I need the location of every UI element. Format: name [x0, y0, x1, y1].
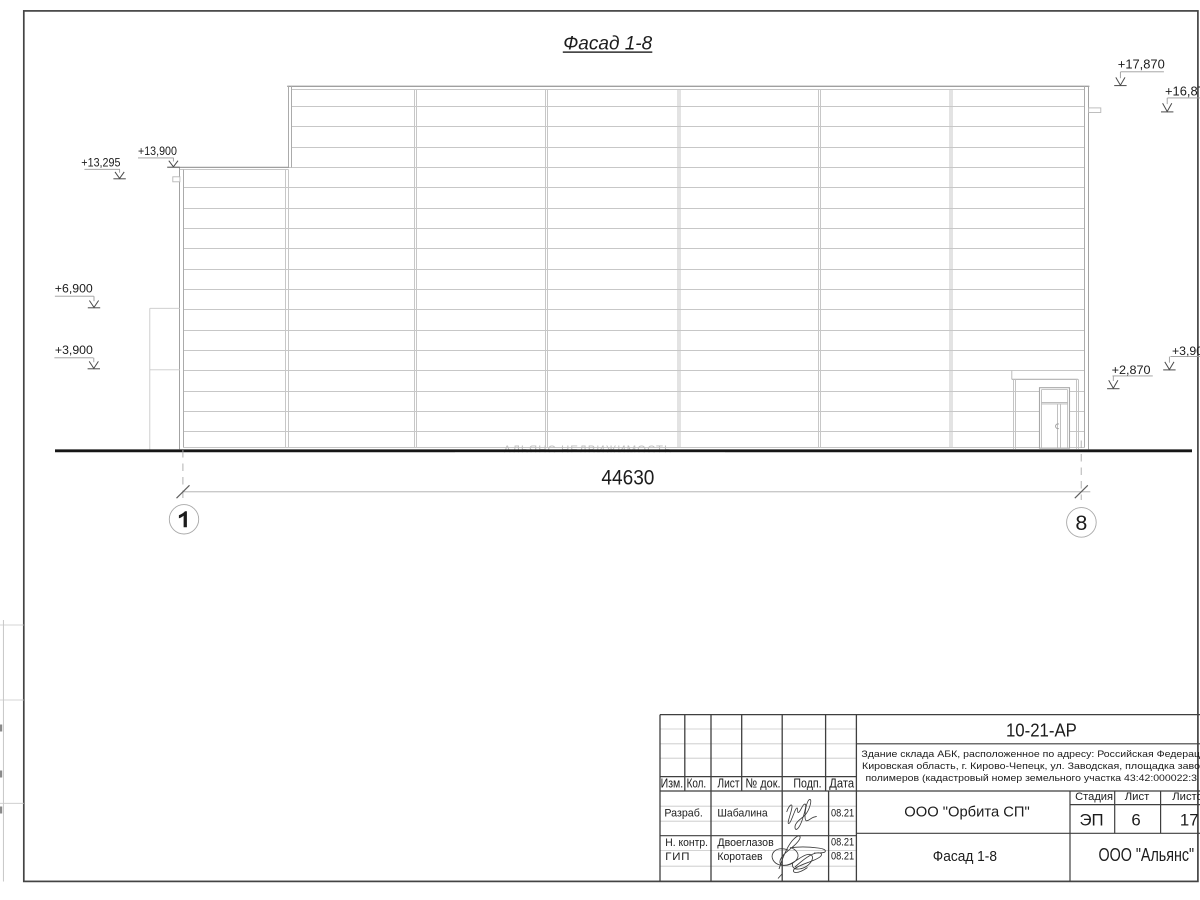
svg-text:Шабалина: Шабалина: [717, 807, 768, 819]
svg-text:+6,900: +6,900: [55, 281, 93, 295]
svg-text:+17,870: +17,870: [1118, 56, 1165, 71]
svg-text:17: 17: [1180, 810, 1199, 829]
svg-text:08.21: 08.21: [831, 837, 854, 849]
svg-text:Лист: Лист: [1125, 791, 1150, 803]
svg-text:ООО "Альянс": ООО "Альянс": [1098, 845, 1194, 865]
svg-text:8: 8: [1075, 511, 1087, 535]
svg-text:Кол.: Кол.: [687, 776, 707, 791]
svg-text:Стадия: Стадия: [1075, 791, 1113, 803]
svg-text:+13,900: +13,900: [138, 144, 177, 158]
svg-text:Двоеглазов: Двоеглазов: [717, 837, 773, 849]
svg-text:Фасад 1-8: Фасад 1-8: [563, 33, 652, 54]
svg-text:44630: 44630: [601, 467, 654, 490]
svg-text:№ док.: № док.: [745, 776, 780, 791]
svg-text:+16,870: +16,870: [1165, 83, 1200, 98]
svg-text:6: 6: [1131, 810, 1140, 829]
svg-text:+3,900: +3,900: [55, 343, 93, 357]
svg-text:Н. контр.: Н. контр.: [665, 837, 708, 849]
svg-text:Дата: Дата: [829, 776, 854, 791]
svg-text:+2,870: +2,870: [1112, 363, 1151, 377]
svg-text:+13,295: +13,295: [81, 155, 120, 169]
svg-text:08.21: 08.21: [831, 807, 854, 819]
svg-text:полимеров (кадастровый номер з: полимеров (кадастровый номер земельного …: [866, 773, 1198, 783]
svg-text:ГИП: ГИП: [665, 851, 690, 863]
svg-text:ЭП: ЭП: [1079, 810, 1103, 829]
svg-text:10-21-АР: 10-21-АР: [1006, 719, 1077, 740]
svg-text:Коротаев: Коротаев: [717, 851, 762, 863]
svg-text:Листов: Листов: [1172, 791, 1200, 803]
svg-text:Фасад 1-8: Фасад 1-8: [933, 849, 997, 865]
svg-text:Подп.: Подп.: [793, 776, 821, 791]
svg-text:08.21: 08.21: [831, 850, 854, 862]
svg-text:Разраб.: Разраб.: [664, 807, 702, 819]
svg-text:Кировская область, г. Кирово-Ч: Кировская область, г. Кирово-Чепецк, ул.…: [862, 761, 1200, 771]
svg-text:Здание склада АБК, расположенн: Здание склада АБК, расположенное по адре…: [861, 749, 1200, 759]
svg-text:Изм.: Изм.: [661, 776, 684, 791]
svg-text:Лист: Лист: [717, 776, 739, 791]
svg-text:ООО "Орбита СП": ООО "Орбита СП": [904, 804, 1030, 820]
svg-text:+3,900: +3,900: [1172, 344, 1200, 358]
